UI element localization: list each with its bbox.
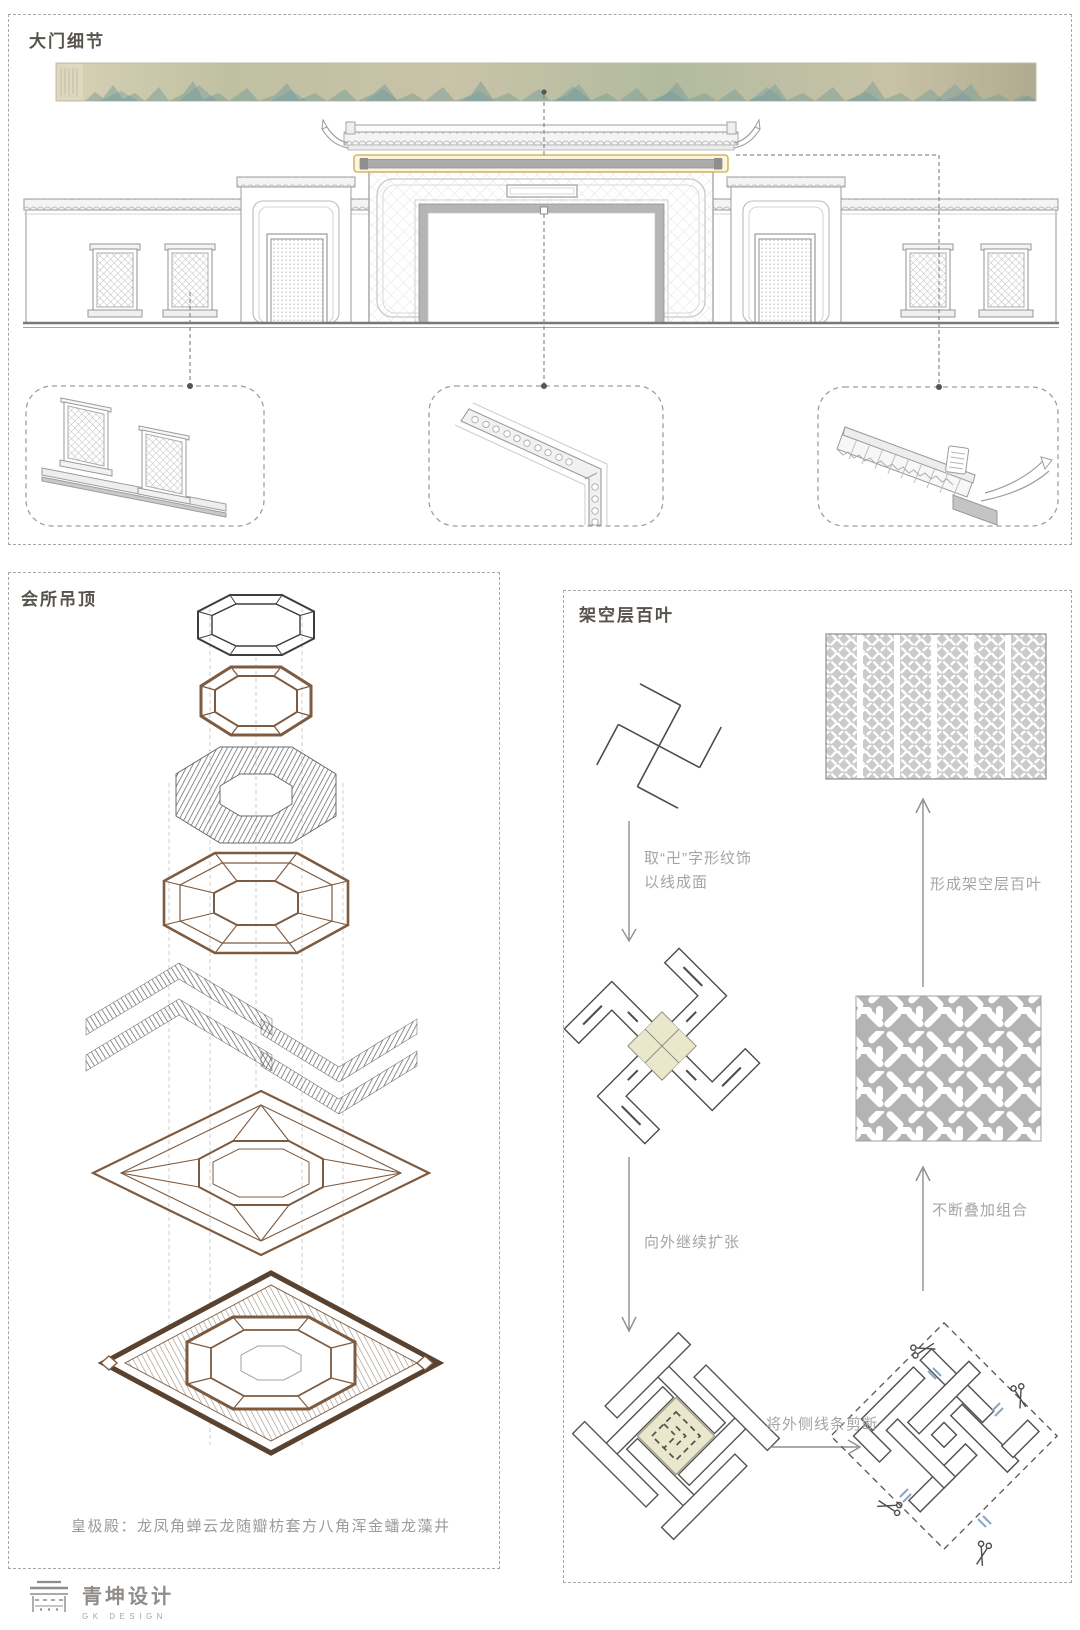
arrow-up-1 [916,1167,930,1291]
central-gate [322,120,760,323]
lattice-window [88,244,142,317]
louver-panel: 架空层百叶 [563,590,1072,1583]
ground-line [23,323,1059,328]
wan-motif-expanded [570,1330,782,1542]
scissors-icon [973,1541,992,1567]
right-gatehouse [727,177,845,323]
wan-motif-outlined [547,931,776,1160]
wan-motif-line [597,684,721,808]
arrow-up-2 [916,799,930,987]
highlighted-beam [354,155,728,172]
gate-detail-panel: 大门细节 [8,14,1072,545]
flow-label-step4: 不断叠加组合 [932,1199,1028,1223]
arrow-down-2 [622,1157,636,1331]
cut-mark [992,1403,1003,1416]
left-gatehouse [237,177,355,323]
cut-mark [978,1516,991,1527]
arrow-down-1 [622,821,636,941]
ceiling-exploded-diagram [9,573,501,1570]
flow-label-step2: 向外继续扩张 [644,1231,740,1255]
woven-pattern-square [856,996,1041,1141]
brand-name: 青坤设计 [82,1580,174,1609]
flow-label-step3: 将外侧线条剪断 [766,1413,878,1437]
flow-label-step1-line1: 取“卍”字形纹饰 [644,847,752,871]
connector-anchor-marker [541,207,548,214]
gate-roof [322,120,760,150]
gate-elevation-drawing [9,15,1073,546]
brand-subtitle: GK DESIGN [82,1612,174,1621]
brand-logo-icon [26,1574,72,1620]
layer-assembled-caisson [101,1273,439,1453]
layer-lattice-plate [93,1091,429,1255]
layer-octagon-dark [198,595,314,655]
brand-logo: 青坤设计 GK DESIGN [26,1574,174,1621]
layer-octagon-hatched [176,747,336,843]
presentation-page: 大门细节 [0,0,1080,1630]
flow-label-step5: 形成架空层百叶 [930,873,1042,897]
wan-motif-cut [831,1323,1057,1567]
louver-panel-result [826,634,1046,779]
lattice-window [901,244,955,317]
layer-chevron-strips [86,963,417,1114]
lattice-window [979,244,1033,317]
detail-box-roof-eave [818,387,1058,526]
arrow-right-cut [770,1440,860,1454]
ceiling-panel: 会所吊顶 [8,572,500,1569]
scissors-icon [876,1497,902,1516]
flow-label-step1-line2: 以线成面 [644,871,708,895]
gate-opening [415,200,668,323]
ceiling-caption: 皇极殿：龙凤角蝉云龙随瓣枋套方八角浑金蟠龙藻井 [71,1515,451,1536]
gate-plaque [507,185,577,197]
scroll-painting [56,63,1036,101]
